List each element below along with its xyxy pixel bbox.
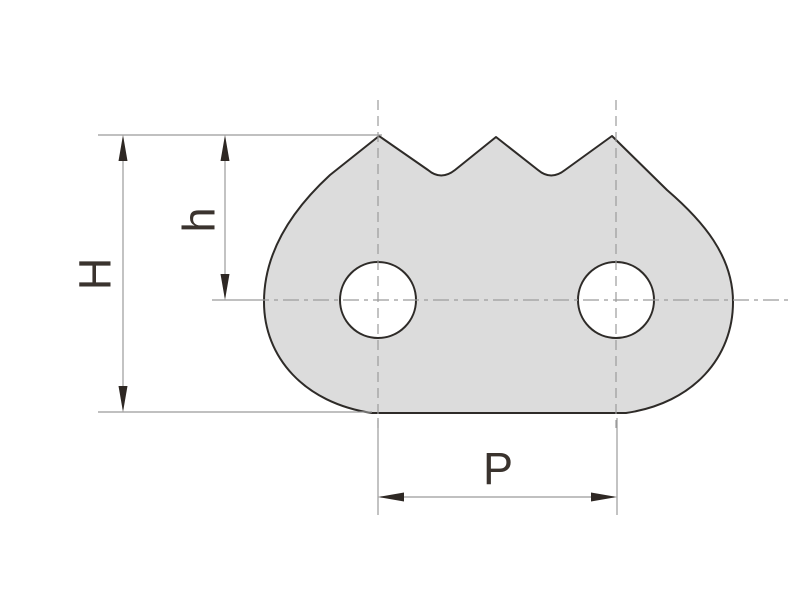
dimension-P-arrow-left-icon: [378, 493, 404, 502]
plate-outline: [264, 136, 733, 413]
dimension-H-arrow-down-icon: [119, 386, 128, 412]
drawing-canvas: H h P: [0, 0, 800, 600]
dimension-P-arrow-right-icon: [591, 493, 617, 502]
dimension-H-label: H: [70, 258, 121, 291]
dimension-P-label: P: [483, 443, 513, 494]
dimension-H-arrow-up-icon: [119, 135, 128, 161]
dimension-h-arrow-down-icon: [221, 274, 230, 300]
dimension-h-label: h: [174, 207, 225, 232]
technical-drawing: H h P: [0, 0, 800, 600]
dimension-h-arrow-up-icon: [221, 135, 230, 161]
